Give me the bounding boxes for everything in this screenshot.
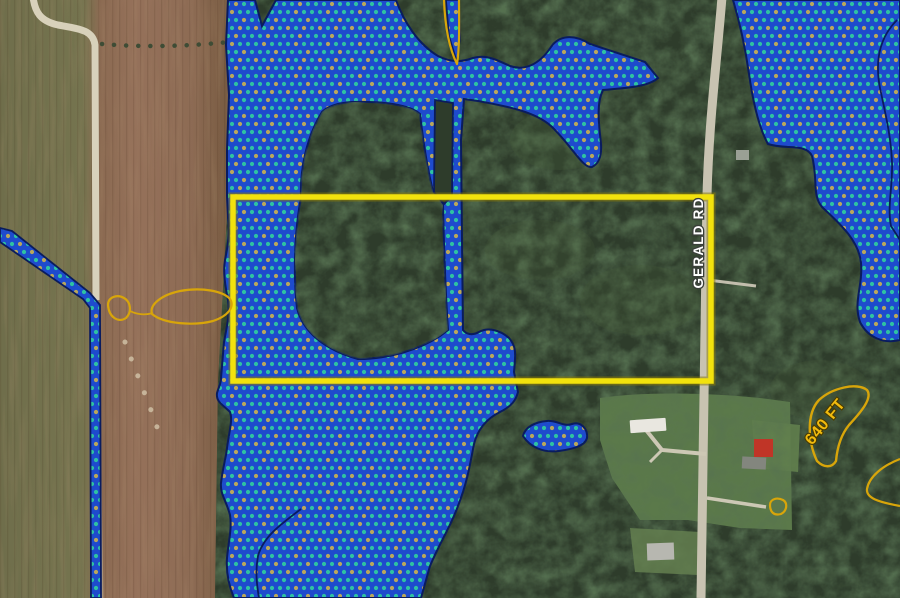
house-building bbox=[742, 456, 767, 469]
wetland-pond-polygon bbox=[523, 421, 587, 451]
map-viewport[interactable]: GERALD RD640 FT bbox=[0, 0, 900, 598]
canopy-highlight bbox=[580, 265, 700, 335]
wetland-parcel-map: GERALD RD640 FT bbox=[0, 0, 900, 598]
road-name-label: GERALD RD bbox=[691, 197, 706, 288]
field-texture bbox=[0, 0, 233, 598]
white-barn-building bbox=[630, 418, 667, 433]
house-building bbox=[736, 150, 749, 160]
house-building bbox=[647, 543, 675, 561]
red-barn-building bbox=[754, 439, 773, 457]
forest-island-in-wetland bbox=[434, 100, 453, 204]
canopy-highlight bbox=[485, 220, 595, 280]
